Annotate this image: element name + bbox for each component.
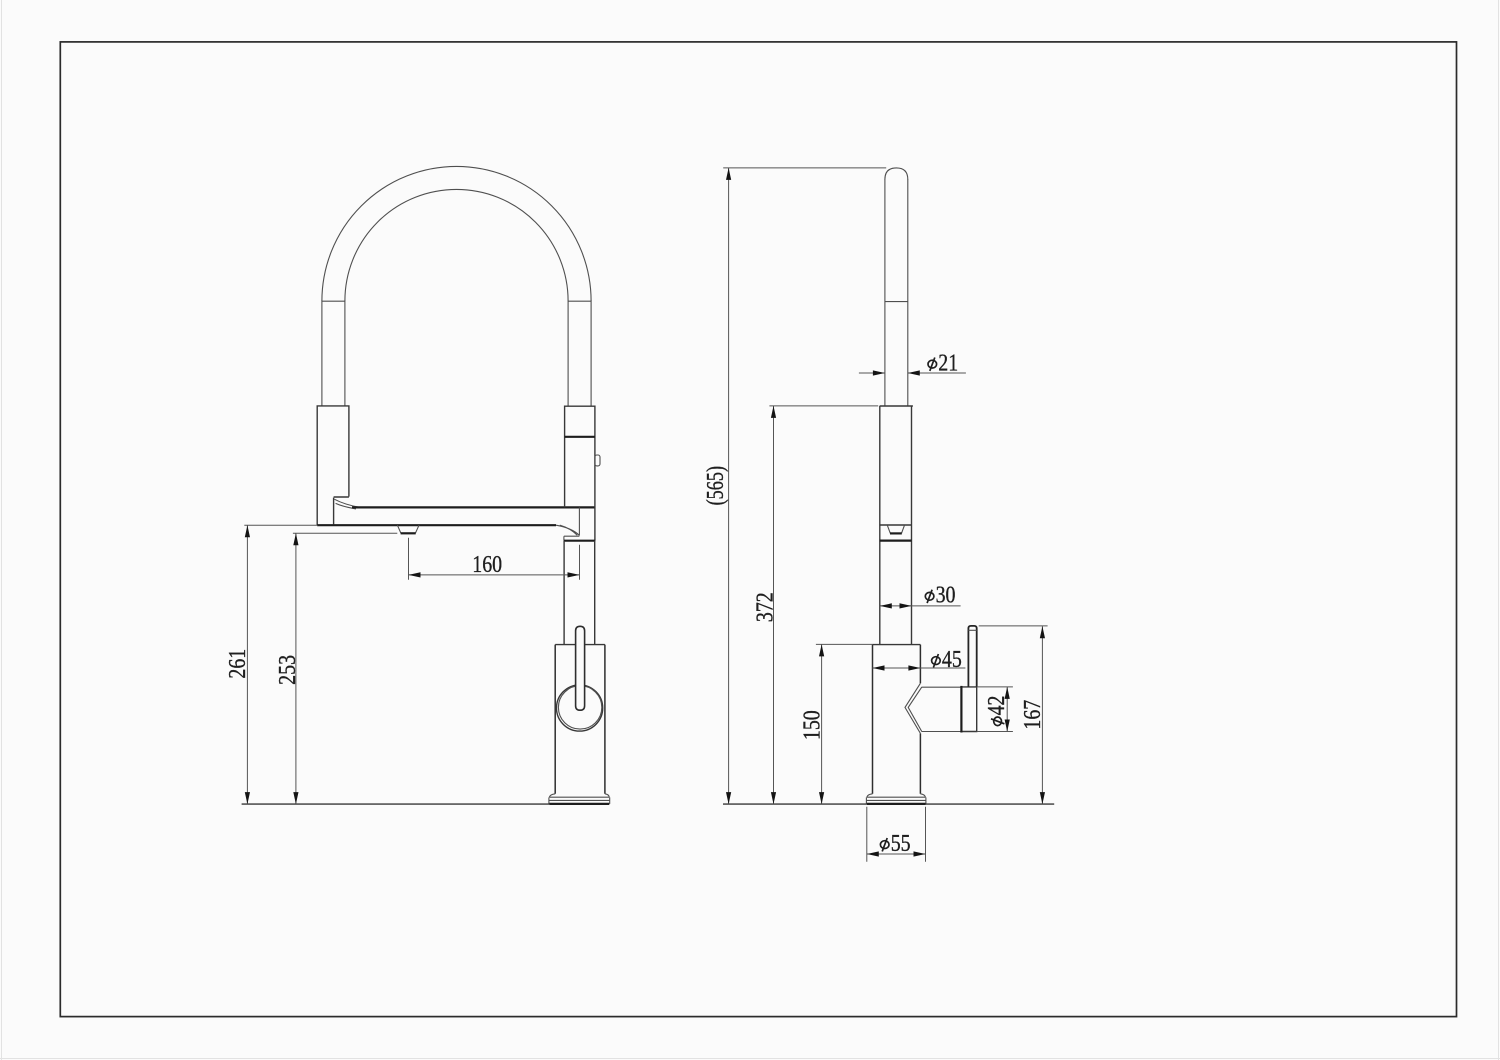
svg-text:21: 21 (938, 349, 958, 376)
svg-text:253: 253 (273, 655, 300, 685)
svg-text:150: 150 (798, 710, 825, 740)
svg-text:45: 45 (942, 645, 962, 672)
svg-text:261: 261 (223, 649, 250, 679)
svg-text:160: 160 (472, 550, 502, 577)
svg-text:(565): (565) (702, 466, 729, 505)
svg-text:372: 372 (751, 592, 778, 622)
svg-text:42: 42 (982, 695, 1009, 715)
svg-text:30: 30 (936, 581, 956, 608)
svg-text:167: 167 (1018, 700, 1045, 730)
svg-text:55: 55 (891, 829, 911, 856)
